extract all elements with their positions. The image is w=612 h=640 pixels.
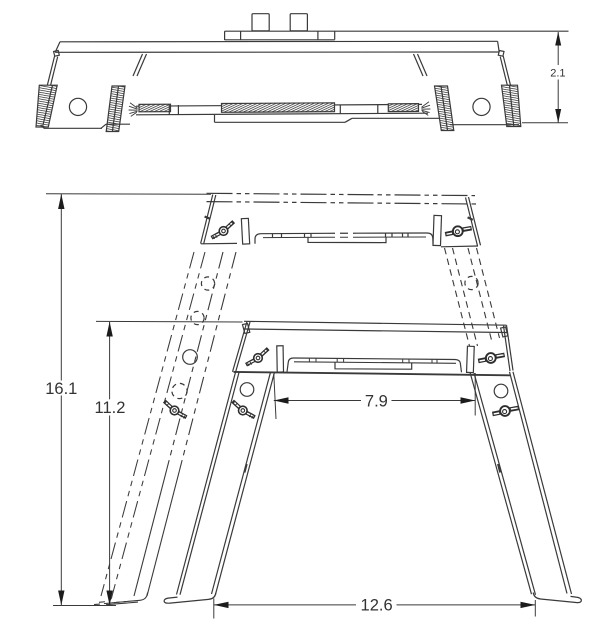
svg-text:7.9: 7.9 <box>365 392 388 410</box>
svg-text:12.6: 12.6 <box>361 597 393 615</box>
svg-text:2.1: 2.1 <box>550 67 565 79</box>
svg-text:16.1: 16.1 <box>45 380 77 398</box>
svg-text:11.2: 11.2 <box>95 399 126 417</box>
